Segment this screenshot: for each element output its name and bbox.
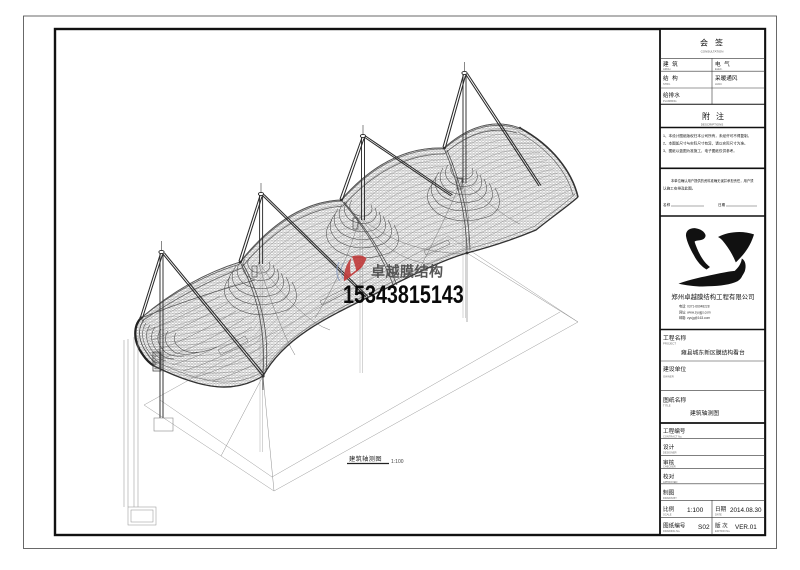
svg-text:工程编号: 工程编号 bbox=[663, 427, 686, 435]
svg-text:网址: www.zyujgs.com: 网址: www.zyujgs.com bbox=[679, 309, 711, 314]
svg-text:会签: 会签 bbox=[700, 38, 730, 48]
svg-text:雍县城东新区膜结构看台: 雍县城东新区膜结构看台 bbox=[681, 349, 745, 357]
svg-text:1:100: 1:100 bbox=[391, 459, 404, 465]
svg-text:版 次: 版 次 bbox=[715, 522, 728, 530]
svg-text:比例: 比例 bbox=[663, 505, 675, 513]
svg-text:15343815143: 15343815143 bbox=[343, 281, 464, 309]
svg-text:EDITION No.: EDITION No. bbox=[715, 529, 731, 533]
svg-text:邮箱: zyujg@163.com: 邮箱: zyujg@163.com bbox=[679, 315, 710, 320]
svg-text:2014.08.30: 2014.08.30 bbox=[730, 507, 762, 514]
svg-text:图纸编号: 图纸编号 bbox=[663, 522, 686, 530]
svg-text:PROJECT: PROJECT bbox=[663, 342, 676, 346]
svg-text:名称: 名称 bbox=[663, 202, 671, 207]
svg-text:1、本设计图纸版权归本公司所有，未经许可不得复制。: 1、本设计图纸版权归本公司所有，未经许可不得复制。 bbox=[663, 133, 751, 138]
svg-text:卓越膜结构: 卓越膜结构 bbox=[371, 264, 444, 280]
svg-text:3、图纸以蓝图为准施工，电子图纸仅供参考。: 3、图纸以蓝图为准施工，电子图纸仅供参考。 bbox=[663, 148, 737, 153]
svg-text:CONTRACT No.: CONTRACT No. bbox=[663, 434, 682, 438]
svg-text:APPROVED: APPROVED bbox=[663, 480, 678, 484]
svg-text:建筑轴测图: 建筑轴测图 bbox=[690, 409, 719, 417]
svg-text:OWNER: OWNER bbox=[663, 375, 674, 379]
svg-text:采暖通风: 采暖通风 bbox=[715, 74, 738, 82]
svg-text:ARCH.: ARCH. bbox=[663, 67, 671, 71]
svg-text:VER.01: VER.01 bbox=[735, 524, 757, 531]
svg-text:日期: 日期 bbox=[715, 506, 727, 513]
svg-text:2、本图如尺寸与实际尺寸有异，请以实际尺寸为准。: 2、本图如尺寸与实际尺寸有异，请以实际尺寸为准。 bbox=[663, 141, 748, 146]
svg-text:日期: 日期 bbox=[718, 202, 726, 207]
svg-text:1:100: 1:100 bbox=[687, 507, 704, 514]
svg-text:CONSULTATION: CONSULTATION bbox=[701, 50, 724, 54]
svg-text:附注: 附注 bbox=[702, 111, 730, 121]
svg-text:校对: 校对 bbox=[663, 473, 675, 481]
svg-text:DESIGNER: DESIGNER bbox=[663, 451, 677, 455]
svg-text:ELEC.: ELEC. bbox=[715, 67, 723, 71]
svg-text:结 构: 结 构 bbox=[663, 74, 679, 82]
svg-text:本单位确认用户提供的资料准确无误并承担责任，用户须: 本单位确认用户提供的资料准确无误并承担责任，用户须 bbox=[671, 178, 754, 183]
svg-text:DATE: DATE bbox=[715, 513, 722, 517]
svg-text:电话: 0371-66048228: 电话: 0371-66048228 bbox=[679, 304, 710, 309]
svg-text:电 气: 电 气 bbox=[715, 60, 731, 68]
svg-text:建设单位: 建设单位 bbox=[663, 365, 686, 373]
svg-text:给排水: 给排水 bbox=[663, 91, 680, 99]
svg-text:DRAWN BY: DRAWN BY bbox=[663, 496, 677, 500]
svg-text:认施工安排及此图。: 认施工安排及此图。 bbox=[663, 186, 695, 191]
svg-text:SCALE: SCALE bbox=[663, 513, 672, 517]
svg-text:PLUMBING: PLUMBING bbox=[663, 99, 677, 103]
svg-text:DESCRIPTIONS: DESCRIPTIONS bbox=[701, 123, 724, 127]
svg-text:建筑轴测图: 建筑轴测图 bbox=[349, 455, 382, 463]
svg-text:郑州卓越膜结构工程有限公司: 郑州卓越膜结构工程有限公司 bbox=[671, 292, 754, 301]
svg-text:STRU.: STRU. bbox=[663, 82, 671, 86]
svg-text:HVAC: HVAC bbox=[715, 82, 722, 86]
svg-text:制图: 制图 bbox=[663, 489, 675, 497]
svg-text:DRAWING No.: DRAWING No. bbox=[663, 529, 680, 533]
svg-text:TITLE: TITLE bbox=[663, 404, 671, 408]
svg-text:S02: S02 bbox=[698, 524, 710, 531]
svg-text:设计: 设计 bbox=[663, 443, 675, 451]
svg-text:建 筑: 建 筑 bbox=[663, 60, 679, 68]
